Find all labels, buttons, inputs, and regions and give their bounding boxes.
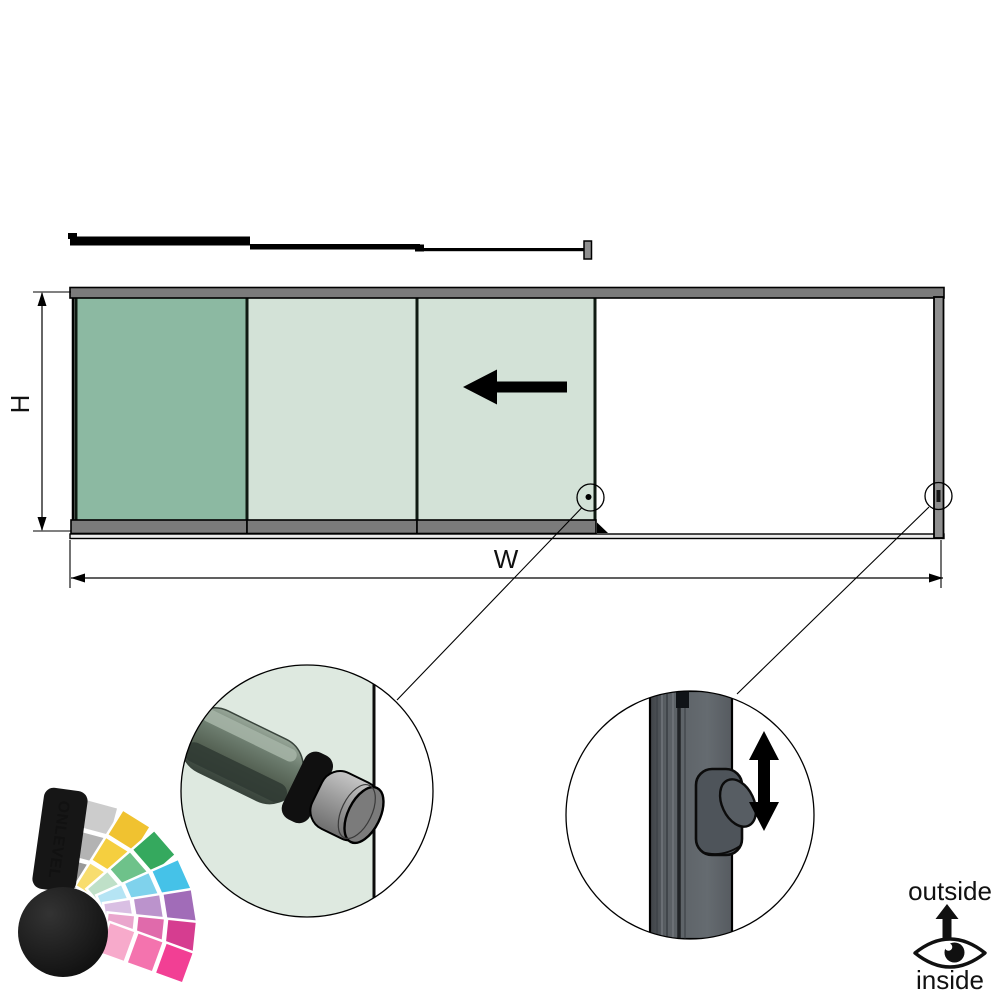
- glass-panel-1: [76, 297, 247, 521]
- plan-thin-track-line: [424, 248, 587, 251]
- plan-mid-track-bar: [250, 244, 420, 250]
- eye-glint: [945, 943, 953, 951]
- h-arrow-top: [38, 292, 47, 306]
- knob-callout-dot: [586, 494, 592, 500]
- latch-detail-view: [566, 691, 814, 939]
- onlevel-logo: ONLEVEL: [18, 786, 197, 983]
- logo-ball-icon: [18, 887, 108, 977]
- bottom-rail-panel-3: [417, 520, 596, 534]
- elevation-view: [70, 288, 952, 539]
- outside-label: outside: [908, 876, 992, 906]
- height-label: H: [5, 395, 35, 414]
- bottom-track: [70, 534, 944, 539]
- height-dimension: H: [5, 292, 71, 531]
- inside-label: inside: [916, 965, 984, 995]
- width-label: W: [494, 544, 519, 574]
- plan-end-post: [584, 241, 592, 259]
- bottom-rail-panel-2: [247, 520, 417, 534]
- h-arrow-bottom: [38, 517, 47, 531]
- width-dimension: W: [70, 540, 943, 588]
- latch-callout-tick: [937, 490, 941, 502]
- orientation-legend: outside inside: [908, 876, 992, 995]
- glass-panel-2: [247, 297, 417, 521]
- glass-panel-3: [417, 297, 595, 521]
- drawing-canvas: H W: [0, 0, 1000, 1000]
- top-rail: [70, 288, 944, 299]
- stacking-plan-view: [68, 233, 592, 259]
- bottom-rail-panel-1: [71, 520, 247, 534]
- knob-detail-view: [170, 660, 499, 925]
- bottom-guide-wedge: [597, 523, 608, 534]
- arrow-up-icon: [936, 904, 959, 940]
- technical-drawing: H W: [0, 0, 1000, 1000]
- post-top-block: [676, 691, 689, 708]
- plan-stacked-panels-bar: [70, 237, 250, 246]
- w-arrow-left: [71, 574, 85, 583]
- knob-detail-open-bg: [374, 660, 499, 925]
- plan-step-nub: [415, 245, 424, 252]
